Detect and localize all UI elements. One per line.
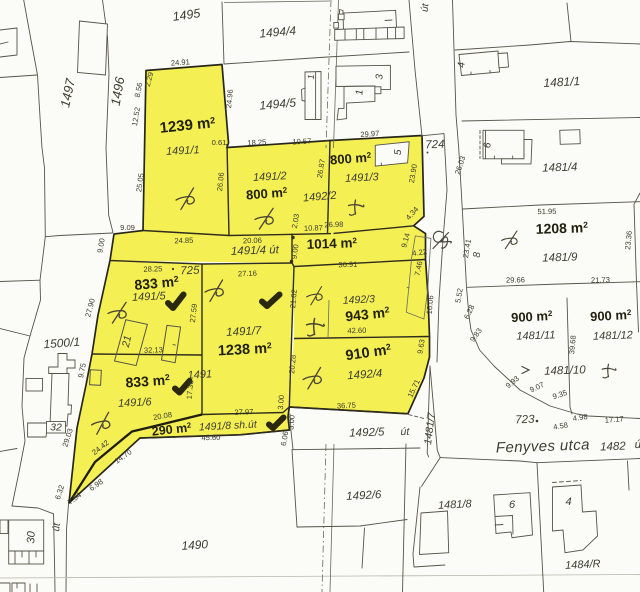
svg-text:27.16: 27.16 (238, 269, 257, 279)
svg-text:ú: ú (634, 439, 640, 451)
svg-text:1492/5: 1492/5 (349, 426, 385, 439)
svg-text:6: 6 (482, 142, 493, 148)
svg-text:724: 724 (425, 139, 445, 152)
svg-text:1481/11: 1481/11 (516, 329, 555, 342)
svg-text:45.60: 45.60 (201, 433, 220, 443)
svg-text:23.36: 23.36 (623, 230, 634, 250)
svg-text:3.00: 3.00 (276, 395, 286, 411)
svg-text:20.28: 20.28 (287, 354, 298, 374)
svg-text:1481/4: 1481/4 (542, 161, 578, 174)
svg-text:36.91: 36.91 (338, 260, 357, 270)
svg-text:1491/4 út: 1491/4 út (231, 244, 280, 258)
svg-text:1491: 1491 (187, 368, 212, 381)
svg-text:4: 4 (565, 496, 571, 508)
svg-text:26.98: 26.98 (324, 220, 343, 230)
svg-text:Fenyves utca: Fenyves utca (496, 436, 591, 456)
svg-text:24.91: 24.91 (171, 57, 191, 67)
svg-text:1491/6: 1491/6 (118, 396, 153, 410)
svg-text:10.57: 10.57 (292, 137, 311, 147)
svg-text:900 m2: 900 m2 (590, 307, 633, 324)
svg-text:5: 5 (393, 149, 404, 155)
svg-text:1491/3: 1491/3 (345, 171, 380, 185)
svg-text:16.06: 16.06 (425, 295, 436, 315)
svg-text:1481/12: 1481/12 (593, 329, 633, 342)
svg-text:8: 8 (472, 252, 483, 258)
svg-text:1484/R: 1484/R (565, 558, 601, 572)
svg-text:32: 32 (50, 422, 62, 434)
svg-text:18.25: 18.25 (247, 138, 266, 148)
svg-text:24.85: 24.85 (174, 236, 193, 246)
svg-text:3.00: 3.00 (286, 415, 296, 431)
svg-text:36.75: 36.75 (337, 401, 356, 411)
svg-text:1491/7: 1491/7 (226, 325, 262, 339)
svg-text:út: út (400, 426, 410, 438)
svg-text:17.17: 17.17 (604, 414, 624, 425)
svg-text:1491/2: 1491/2 (253, 170, 287, 184)
svg-text:3: 3 (374, 74, 385, 80)
svg-text:800 m2: 800 m2 (246, 185, 289, 203)
svg-text:900 m2: 900 m2 (511, 308, 554, 325)
svg-text:1492/6: 1492/6 (346, 489, 382, 503)
svg-text:833 m2: 833 m2 (125, 371, 171, 390)
svg-text:29.97: 29.97 (360, 129, 380, 139)
svg-text:1481/10: 1481/10 (544, 364, 587, 377)
svg-text:1208 m2: 1208 m2 (535, 219, 588, 237)
svg-text:1491/1: 1491/1 (166, 144, 200, 158)
svg-text:1: 1 (354, 89, 365, 95)
svg-text:6: 6 (509, 499, 516, 511)
svg-text:21.73: 21.73 (591, 275, 610, 284)
svg-text:17.36: 17.36 (185, 380, 196, 400)
svg-text:27.97: 27.97 (234, 407, 253, 417)
svg-text:1482: 1482 (600, 441, 627, 454)
svg-text:1490: 1490 (181, 537, 209, 553)
svg-text:21.62: 21.62 (288, 289, 299, 309)
svg-text:42.60: 42.60 (347, 326, 366, 336)
svg-text:1492/4: 1492/4 (347, 368, 383, 382)
svg-text:800 m2: 800 m2 (330, 150, 373, 168)
svg-text:723: 723 (515, 414, 535, 427)
svg-text:28.25: 28.25 (143, 264, 162, 274)
svg-text:4: 4 (456, 62, 467, 68)
svg-text:32.13: 32.13 (144, 345, 163, 355)
svg-text:39.68: 39.68 (567, 335, 578, 355)
svg-text:29.66: 29.66 (506, 275, 525, 284)
svg-text:1481/9: 1481/9 (542, 251, 578, 264)
svg-text:1481/1: 1481/1 (543, 74, 580, 90)
svg-text:9.09: 9.09 (120, 223, 135, 232)
svg-text:20.06: 20.06 (243, 236, 262, 246)
svg-text:51.95: 51.95 (537, 207, 556, 216)
svg-text:30: 30 (25, 530, 37, 544)
svg-text:0.61: 0.61 (212, 138, 227, 147)
svg-text:1014 m2: 1014 m2 (306, 235, 357, 252)
svg-text:10.87: 10.87 (304, 223, 323, 233)
svg-text:1481/8: 1481/8 (438, 498, 473, 512)
svg-text:1: 1 (306, 74, 316, 79)
svg-text:1500/1: 1500/1 (43, 335, 81, 352)
svg-text:1238 m2: 1238 m2 (217, 340, 272, 359)
svg-text:725: 725 (180, 265, 200, 278)
